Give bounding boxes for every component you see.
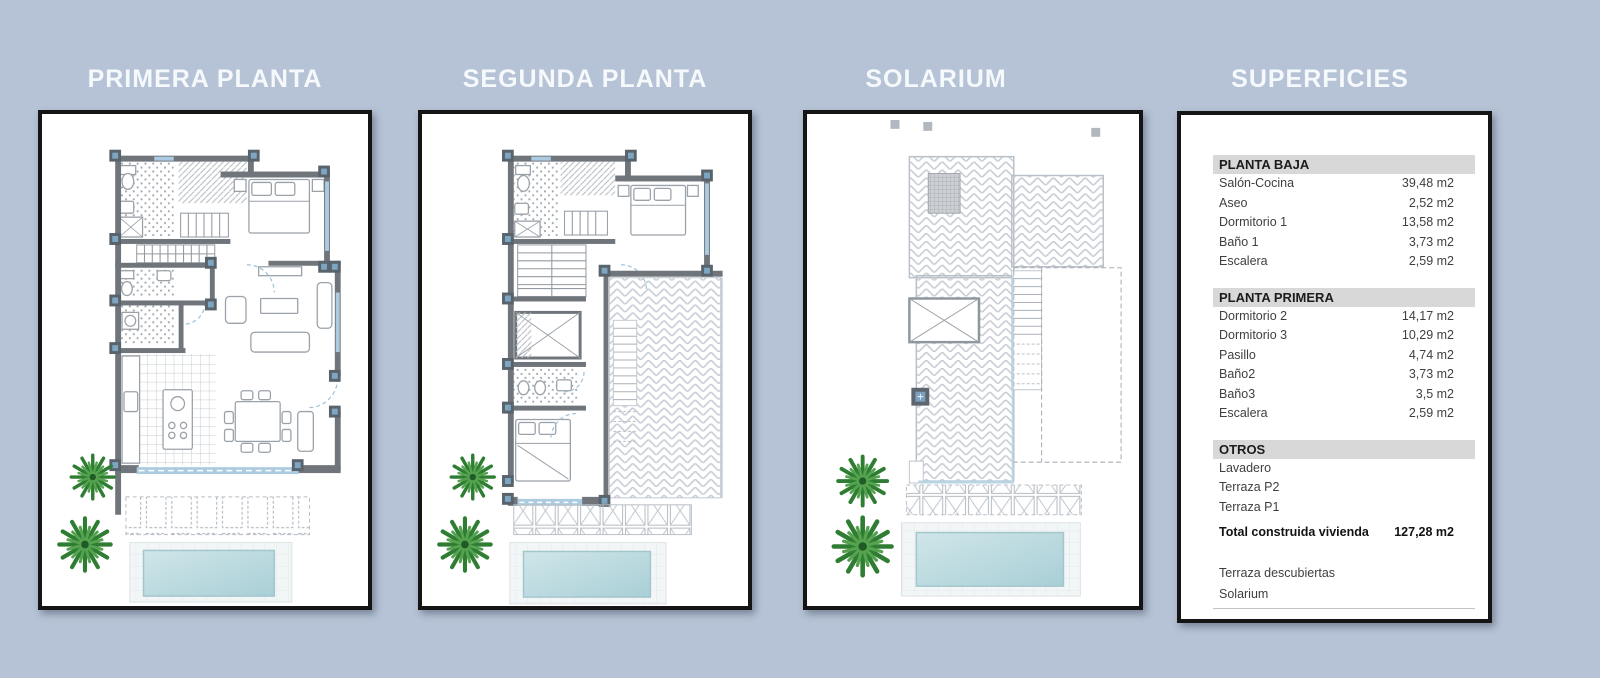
table-row: Dormitorio 214,17 m2: [1213, 307, 1475, 327]
table-row: Solarium: [1213, 584, 1475, 605]
tree-icon: [59, 455, 114, 570]
floorplan-solarium-drawing: [807, 114, 1139, 606]
tree-icon: [439, 455, 494, 570]
table-row: Dormitorio 310,29 m2: [1213, 326, 1475, 346]
floorplan-panel-segunda-planta: [418, 110, 752, 610]
floor-tiles: [514, 162, 616, 404]
table-row: Baño33,5 m2: [1213, 385, 1475, 405]
floorplan-primera-planta-drawing: [42, 114, 368, 606]
roof-piers: [890, 120, 1100, 137]
section-header-planta-baja: PLANTA BAJA: [1213, 155, 1475, 174]
deck-notch: [909, 461, 923, 483]
table-row: Escalera2,59 m2: [1213, 252, 1475, 272]
title-primera-planta: PRIMERA PLANTA: [38, 62, 372, 96]
terrace: [126, 497, 309, 535]
table-row: Pasillo4,74 m2: [1213, 346, 1475, 366]
balustrade: [906, 485, 1081, 515]
section-header-otros: OTROS: [1213, 440, 1475, 459]
table-row: Lavadero: [1213, 459, 1475, 479]
floorplan-panel-primera-planta: [38, 110, 372, 610]
superficies-table: PLANTA BAJA Salón-Cocina39,48 m2 Aseo2,5…: [1213, 155, 1475, 609]
stair-void: [909, 299, 979, 343]
floorplan-segunda-planta-drawing: [422, 114, 748, 606]
tree-icon: [834, 457, 892, 576]
pool: [510, 543, 666, 605]
skylight: [928, 174, 960, 214]
extras-block: Terraza descubiertas Solarium: [1213, 563, 1475, 609]
title-segunda-planta: SEGUNDA PLANTA: [418, 62, 752, 96]
section-header-planta-primera: PLANTA PRIMERA: [1213, 288, 1475, 307]
pool: [130, 543, 292, 603]
title-superficies: SUPERFICIES: [1177, 62, 1463, 96]
table-row: Dormitorio 113,58 m2: [1213, 213, 1475, 233]
brochure-sheet: PRIMERA PLANTA SEGUNDA PLANTA SOLARIUM S…: [0, 0, 1600, 678]
pool: [901, 523, 1080, 596]
elevator-shaft: [516, 312, 580, 358]
table-row: Terraza P1: [1213, 498, 1475, 518]
title-solarium: SOLARIUM: [790, 62, 1082, 96]
stairs: [1012, 271, 1042, 390]
floorplan-panel-solarium: [803, 110, 1143, 610]
total-row: Total construida vivienda127,28 m2: [1213, 517, 1475, 543]
table-row: Aseo2,52 m2: [1213, 194, 1475, 214]
table-row: Baño 13,73 m2: [1213, 233, 1475, 253]
superficies-panel: PLANTA BAJA Salón-Cocina39,48 m2 Aseo2,5…: [1177, 111, 1492, 623]
table-row: Escalera2,59 m2: [1213, 404, 1475, 424]
table-row: Salón-Cocina39,48 m2: [1213, 174, 1475, 194]
balustrade: [514, 505, 692, 535]
table-row: Baño23,73 m2: [1213, 365, 1475, 385]
drain-box: [911, 388, 929, 406]
table-row: Terraza P2: [1213, 478, 1475, 498]
table-row: Terraza descubiertas: [1213, 563, 1475, 584]
terrace-deck: [609, 278, 722, 498]
